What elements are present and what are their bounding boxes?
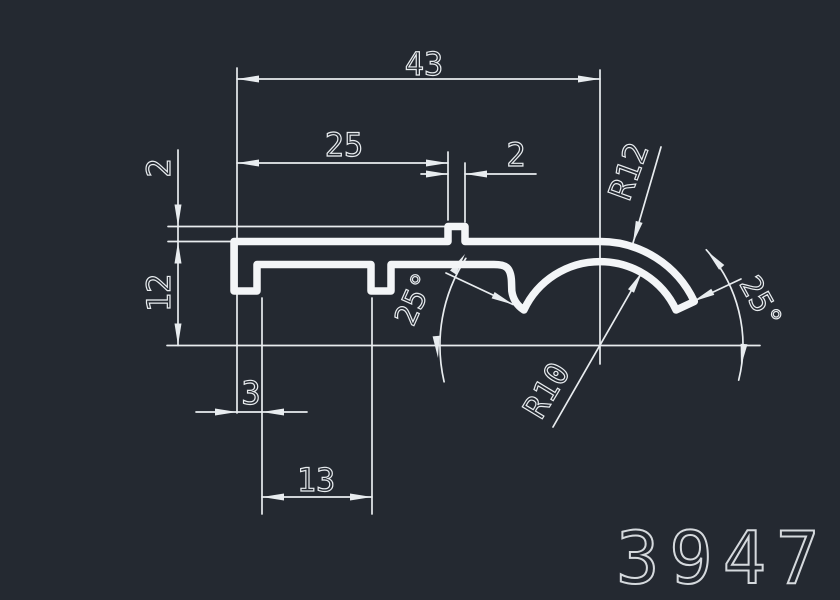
part-number: 3947 — [616, 516, 829, 600]
dim-rib-height-label: 2 — [140, 158, 178, 177]
dim-rib-width-label: 2 — [506, 136, 525, 174]
dim-left-leg-width-label: 3 — [241, 374, 260, 412]
cad-drawing-window: 43 25 2 2 12 3 13 R12 R10 25° 25° 3947 — [0, 0, 840, 600]
dim-leg-spacing-label: 13 — [297, 461, 336, 499]
dim-overall-width-label: 43 — [405, 45, 444, 83]
dim-profile-height-label: 12 — [140, 274, 178, 313]
cad-canvas: 43 25 2 2 12 3 13 R12 R10 25° 25° 3947 — [0, 0, 840, 600]
dim-flat-width-label: 25 — [325, 126, 364, 164]
